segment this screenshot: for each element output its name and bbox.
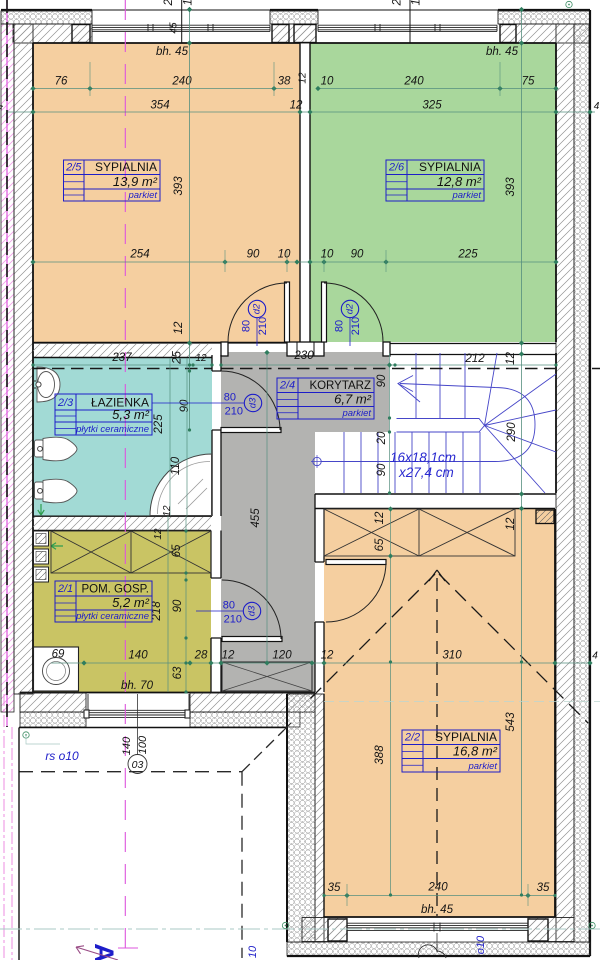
svg-text:parkiet: parkiet: [341, 408, 371, 419]
svg-text:90: 90: [376, 374, 388, 387]
svg-text:63: 63: [172, 666, 184, 679]
svg-text:10: 10: [247, 945, 259, 958]
svg-text:240: 240: [171, 76, 192, 88]
svg-text:218: 218: [151, 601, 163, 622]
svg-text:12: 12: [505, 352, 517, 365]
svg-text:28: 28: [194, 650, 208, 662]
svg-text:bh. 45: bh. 45: [156, 46, 189, 58]
svg-text:16,8 m²: 16,8 m²: [453, 744, 498, 759]
svg-text:2/4: 2/4: [279, 380, 295, 392]
svg-text:212: 212: [464, 353, 485, 365]
svg-text:10: 10: [278, 249, 291, 261]
svg-text:210: 210: [224, 614, 242, 626]
svg-text:A: A: [89, 943, 119, 960]
svg-text:140: 140: [121, 736, 133, 755]
svg-text:80: 80: [224, 392, 236, 404]
svg-text:310: 310: [442, 650, 462, 662]
svg-text:12: 12: [183, 0, 195, 6]
svg-text:65: 65: [171, 544, 183, 557]
svg-text:SYPIALNIA: SYPIALNIA: [95, 160, 157, 174]
svg-text:10: 10: [321, 249, 334, 261]
svg-text:5,2 m²: 5,2 m²: [112, 595, 150, 610]
svg-text:69: 69: [52, 649, 65, 661]
svg-text:12: 12: [153, 528, 164, 540]
svg-text:d3: d3: [248, 397, 259, 408]
svg-text:240: 240: [163, 0, 175, 7]
svg-text:bh. 45: bh. 45: [421, 904, 454, 916]
svg-text:35: 35: [328, 882, 341, 894]
svg-text:12: 12: [505, 517, 517, 530]
svg-text:225: 225: [457, 249, 478, 261]
svg-text:10: 10: [321, 76, 334, 88]
svg-text:4: 4: [594, 101, 600, 112]
svg-text:325: 325: [422, 99, 442, 111]
svg-text:5,3 m²: 5,3 m²: [112, 407, 150, 422]
svg-text:2/2: 2/2: [404, 732, 420, 744]
svg-text:110: 110: [170, 456, 182, 475]
svg-text:d3: d3: [247, 605, 258, 616]
svg-text:12: 12: [195, 353, 207, 364]
svg-text:03: 03: [132, 759, 144, 771]
svg-text:76: 76: [55, 76, 68, 88]
svg-text:13,9 m²: 13,9 m²: [113, 174, 158, 189]
svg-text:240: 240: [427, 882, 448, 894]
svg-text:6,7 m²: 6,7 m²: [334, 392, 372, 407]
svg-text:rs o10: rs o10: [45, 749, 79, 763]
svg-text:80: 80: [241, 320, 253, 332]
svg-text:65: 65: [374, 538, 386, 551]
svg-text:12: 12: [222, 650, 235, 662]
svg-text:80: 80: [334, 320, 346, 332]
svg-text:parkiet: parkiet: [127, 190, 157, 201]
svg-text:393: 393: [173, 176, 185, 196]
svg-text:140: 140: [128, 650, 148, 662]
svg-text:SYPIALNIA: SYPIALNIA: [419, 160, 481, 174]
svg-text:25: 25: [172, 351, 184, 365]
svg-text:354: 354: [150, 99, 169, 111]
svg-text:12: 12: [173, 321, 185, 334]
svg-text:543: 543: [505, 712, 517, 732]
svg-text:2/6: 2/6: [388, 162, 405, 174]
svg-text:240: 240: [392, 0, 404, 7]
svg-text:230: 230: [293, 350, 314, 362]
svg-text:parkiet: parkiet: [451, 190, 481, 201]
svg-text:38: 38: [278, 76, 291, 88]
svg-text:SYPIALNIA: SYPIALNIA: [435, 730, 497, 744]
svg-text:35: 35: [537, 882, 550, 894]
svg-text:KORYTARZ: KORYTARZ: [309, 380, 371, 392]
svg-text:225: 225: [153, 414, 165, 435]
svg-text:210: 210: [257, 317, 269, 335]
svg-text:290: 290: [506, 422, 518, 443]
svg-text:4: 4: [0, 104, 6, 110]
svg-text:2/1: 2/1: [57, 583, 73, 595]
svg-text:237: 237: [111, 352, 132, 364]
svg-text:bh. 70: bh. 70: [121, 680, 154, 692]
svg-text:o10: o10: [475, 935, 487, 954]
svg-text:90: 90: [247, 249, 260, 261]
svg-text:płytki ceramiczne: płytki ceramiczne: [75, 611, 149, 622]
svg-text:20: 20: [376, 431, 388, 445]
svg-text:210: 210: [350, 317, 362, 335]
svg-text:d2: d2: [345, 303, 356, 314]
svg-text:12,8 m²: 12,8 m²: [437, 174, 482, 189]
svg-text:12: 12: [411, 0, 423, 6]
svg-text:45: 45: [169, 22, 180, 34]
svg-text:393: 393: [505, 177, 517, 197]
svg-text:120: 120: [272, 650, 292, 662]
svg-text:12: 12: [162, 505, 173, 517]
svg-text:90: 90: [376, 463, 388, 476]
svg-text:parkiet: parkiet: [467, 761, 497, 772]
svg-text:80: 80: [223, 600, 235, 612]
svg-text:210: 210: [225, 406, 243, 418]
svg-text:75: 75: [522, 76, 535, 88]
svg-text:12: 12: [321, 650, 334, 662]
svg-text:POM. GOSP.: POM. GOSP.: [81, 584, 149, 596]
svg-text:2/3: 2/3: [57, 397, 74, 409]
svg-text:16x18,1cm: 16x18,1cm: [390, 450, 456, 465]
svg-text:12: 12: [290, 99, 303, 111]
svg-text:240: 240: [403, 76, 424, 88]
svg-text:100: 100: [137, 735, 149, 754]
svg-text:12: 12: [298, 72, 309, 84]
svg-text:90: 90: [179, 399, 191, 412]
svg-text:12: 12: [374, 511, 386, 524]
svg-text:bh. 45: bh. 45: [486, 46, 519, 58]
svg-text:90: 90: [351, 249, 364, 261]
svg-text:90: 90: [172, 599, 184, 612]
svg-text:x27,4 cm: x27,4 cm: [398, 465, 454, 480]
svg-text:4: 4: [592, 651, 598, 662]
svg-text:254: 254: [129, 249, 149, 261]
svg-text:d2: d2: [252, 303, 263, 314]
svg-text:płytki ceramiczne: płytki ceramiczne: [75, 424, 149, 435]
svg-text:2/5: 2/5: [65, 162, 82, 174]
svg-text:388: 388: [374, 745, 386, 765]
svg-text:455: 455: [250, 508, 262, 528]
